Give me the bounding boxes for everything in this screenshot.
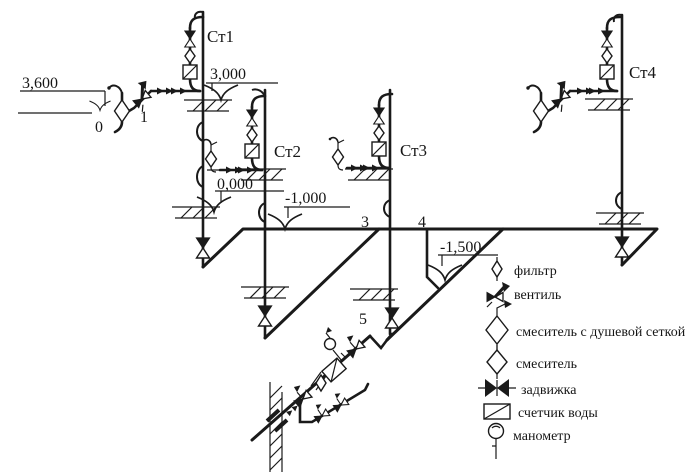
- gate-valve-icon: [616, 237, 629, 257]
- elevation-label: 3,000: [210, 66, 246, 83]
- node-label-3: 3: [361, 214, 369, 231]
- level-mark-icon: [268, 214, 302, 229]
- legend: фильтр вентиль смеситель с душевой сетко…: [478, 257, 686, 459]
- filter-icon: [492, 261, 502, 277]
- shower-mixer-icon: [486, 316, 508, 344]
- riser-st2: [252, 89, 265, 338]
- level-mark-icon: [204, 85, 238, 100]
- water-input-line: [252, 327, 370, 472]
- legend-item-valve: вентиль: [487, 282, 561, 307]
- apartment-branch-st2: [202, 96, 265, 174]
- node-label-4: 4: [418, 214, 426, 231]
- riser-label-st2: Ст2: [274, 142, 301, 161]
- legend-item-shower-mixer: смеситель с душевой сеткой: [486, 300, 686, 352]
- riser-label-st1: Ст1: [207, 27, 234, 46]
- floor-hatch: [585, 99, 633, 110]
- shower-mixer-icon: [526, 86, 548, 132]
- apartment-branch-st4: [526, 17, 620, 132]
- legend-item-pressure-gauge: манометр: [489, 424, 571, 460]
- valve-icon: [545, 78, 579, 112]
- node-label-0: 0: [95, 119, 103, 136]
- scheme-svg: 3,600 3,000 0,000 -1,000 -1,500 0 1 3 4 …: [0, 0, 700, 472]
- riser-st4: [614, 15, 622, 265]
- shower-mixer-icon: [107, 86, 129, 132]
- branch-node4-drop: [427, 229, 438, 288]
- node-label-5: 5: [359, 311, 367, 328]
- pipe-crossing-jog: [370, 336, 387, 348]
- pressure-gauge-icon: [325, 327, 343, 361]
- riser-st1: [195, 12, 237, 267]
- floor-slabs: [172, 99, 644, 300]
- apartment-branch-st1: [107, 17, 203, 132]
- legend-label: смеситель: [516, 357, 577, 372]
- gate-valve-icon: [386, 308, 399, 328]
- legend-label: смеситель с душевой сеткой: [516, 325, 686, 340]
- main-distribution-line: [203, 229, 657, 267]
- elevation-mark-3000: 3,000: [204, 66, 278, 100]
- mixer-icon: [329, 138, 344, 170]
- elevation-label: -1,000: [285, 190, 326, 207]
- valve-icon: [340, 332, 365, 357]
- elevation-label: 3,600: [22, 75, 58, 92]
- level-mark-icon: [89, 101, 110, 110]
- water-supply-axonometric-scheme: 3,600 3,000 0,000 -1,000 -1,500 0 1 3 4 …: [0, 0, 700, 472]
- legend-item-filter: фильтр: [492, 257, 557, 281]
- valve-icon: [328, 391, 348, 412]
- legend-label: вентиль: [514, 288, 561, 303]
- legend-item-mixer: смеситель: [487, 345, 577, 379]
- elevation-mark-3600: 3,600: [18, 75, 111, 113]
- apartment-branch-st3: [329, 94, 392, 172]
- legend-label: задвижка: [521, 383, 577, 398]
- node-label-1: 1: [140, 109, 148, 126]
- floor-hatch: [184, 100, 232, 111]
- riser-label-st4: Ст4: [629, 63, 657, 82]
- building-wall: [267, 382, 287, 472]
- gate-valve-icon: [197, 238, 210, 258]
- legend-label: фильтр: [514, 264, 557, 279]
- gate-valve-icon: [259, 306, 272, 326]
- mixer-icon: [487, 350, 507, 374]
- elevation-label: -1,500: [440, 239, 481, 256]
- legend-item-water-meter: счетчик воды: [484, 404, 598, 421]
- elevation-mark-minus-1000: -1,000: [268, 190, 350, 229]
- valve-icon: [126, 78, 160, 112]
- legend-item-gate-valve: задвижка: [478, 379, 577, 398]
- riser-label-st3: Ст3: [400, 141, 427, 160]
- valve-icon: [309, 402, 329, 423]
- legend-label: счетчик воды: [518, 406, 598, 421]
- floor-hatch: [596, 213, 644, 224]
- legend-label: манометр: [513, 429, 571, 444]
